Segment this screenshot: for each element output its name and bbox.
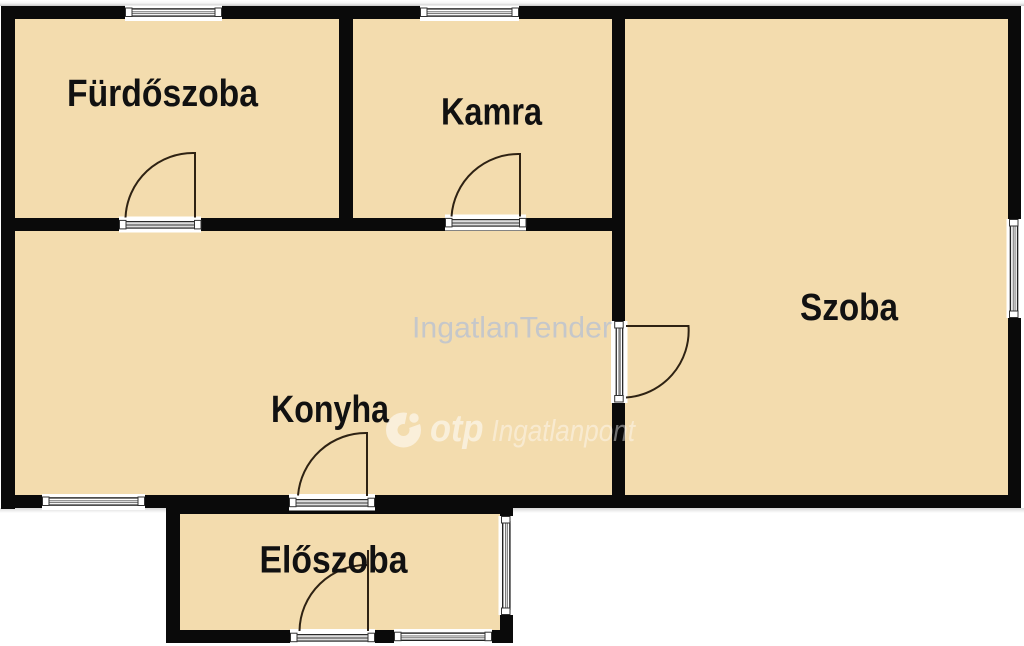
svg-text:Ingatlanpont: Ingatlanpont (492, 413, 637, 448)
svg-text:Fürdőszoba: Fürdőszoba (67, 73, 259, 115)
svg-text:Kamra: Kamra (441, 92, 543, 134)
svg-text:Előszoba: Előszoba (260, 540, 409, 582)
svg-text:IngatlanTender: IngatlanTender (412, 312, 612, 345)
svg-text:Szoba: Szoba (800, 287, 899, 329)
svg-text:otp: otp (430, 408, 484, 450)
svg-text:Konyha: Konyha (271, 389, 390, 431)
